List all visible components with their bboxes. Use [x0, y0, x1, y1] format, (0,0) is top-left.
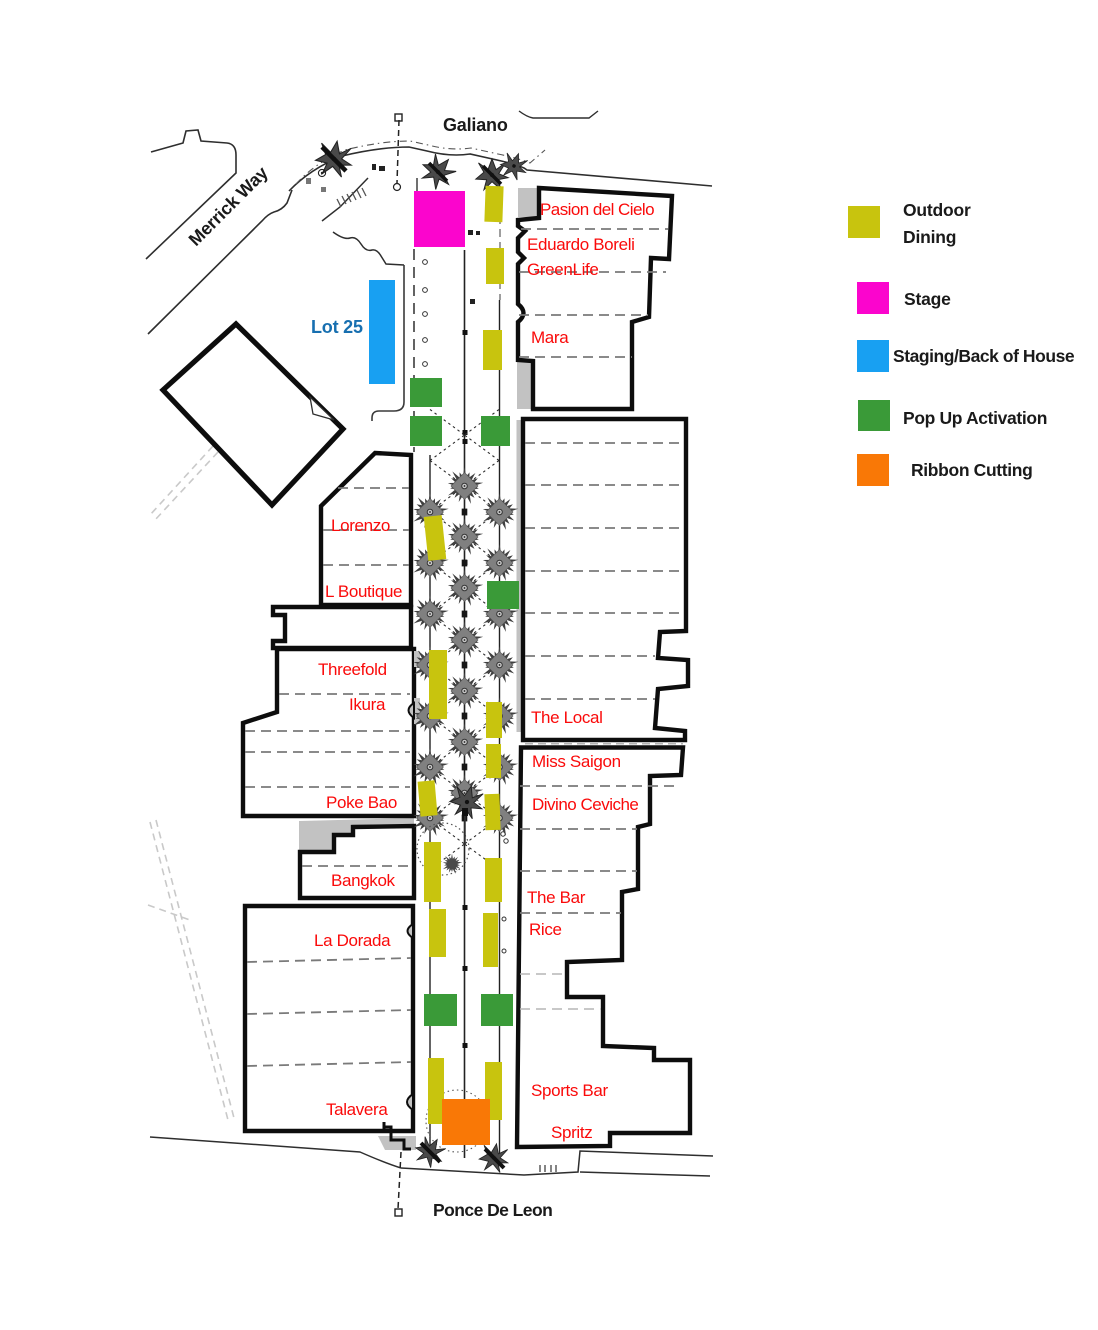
svg-text:Staging/Back of House: Staging/Back of House	[893, 346, 1075, 366]
svg-text:Ponce De Leon: Ponce De Leon	[433, 1200, 552, 1220]
svg-text:Ikura: Ikura	[349, 695, 386, 714]
svg-text:Bangkok: Bangkok	[331, 871, 396, 890]
svg-text:Spritz: Spritz	[551, 1123, 592, 1142]
svg-text:Miss Saigon: Miss Saigon	[532, 752, 621, 771]
svg-text:L Boutique: L Boutique	[325, 582, 402, 601]
svg-text:Pop Up Activation: Pop Up Activation	[903, 408, 1047, 428]
svg-text:Outdoor: Outdoor	[903, 200, 971, 220]
svg-text:Lorenzo: Lorenzo	[331, 516, 390, 535]
svg-text:Threefold: Threefold	[318, 660, 387, 679]
svg-text:Lot 25: Lot 25	[311, 317, 363, 337]
svg-text:The Bar: The Bar	[527, 888, 586, 907]
svg-text:Dining: Dining	[903, 227, 956, 247]
svg-text:Sports Bar: Sports Bar	[531, 1081, 608, 1100]
svg-text:Ribbon Cutting: Ribbon Cutting	[911, 460, 1032, 480]
svg-text:The Local: The Local	[531, 708, 603, 727]
svg-text:Stage: Stage	[904, 289, 951, 309]
svg-text:GreenLife: GreenLife	[527, 260, 599, 279]
svg-text:Eduardo Boreli: Eduardo Boreli	[527, 235, 635, 254]
svg-text:Pasion del Cielo: Pasion del Cielo	[540, 200, 654, 219]
svg-text:La Dorada: La Dorada	[314, 931, 391, 950]
svg-text:Rice: Rice	[529, 920, 562, 939]
svg-text:Divino Ceviche: Divino Ceviche	[532, 795, 638, 814]
svg-text:Poke Bao: Poke Bao	[326, 793, 397, 812]
svg-text:Talavera: Talavera	[326, 1100, 388, 1119]
svg-text:Galiano: Galiano	[443, 115, 508, 135]
svg-text:Mara: Mara	[531, 328, 569, 347]
